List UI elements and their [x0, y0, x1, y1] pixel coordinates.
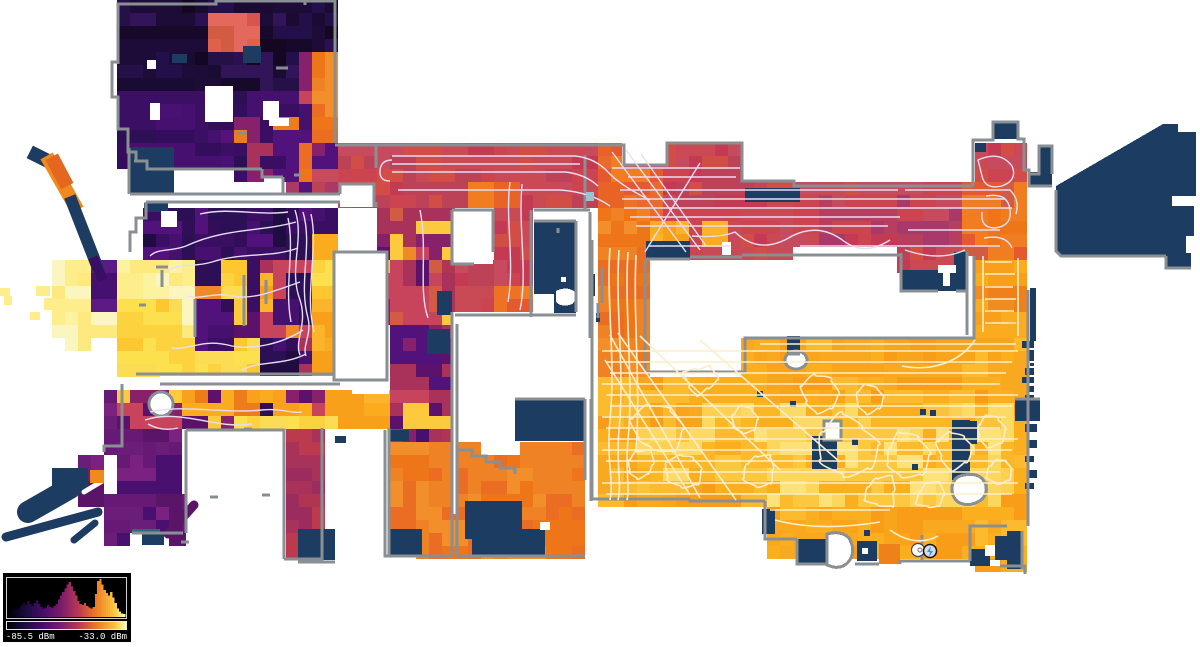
svg-text:-85.5 dBm: -85.5 dBm — [6, 632, 55, 642]
svg-text:-33.0 dBm: -33.0 dBm — [78, 632, 127, 642]
